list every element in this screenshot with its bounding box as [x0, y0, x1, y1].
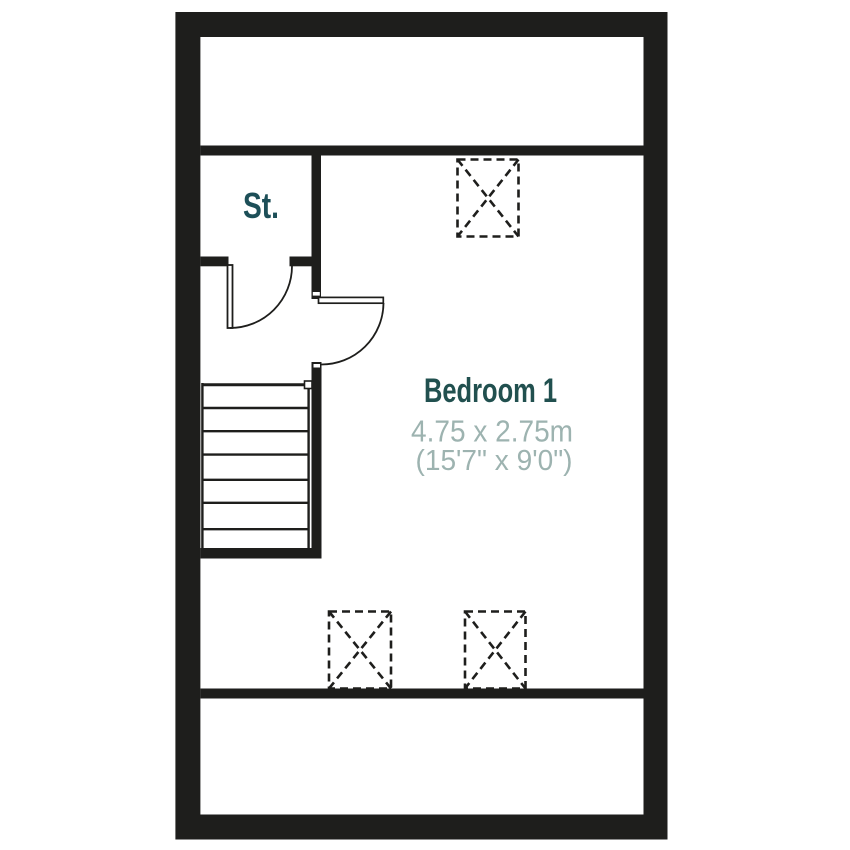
- svg-text:4.75 x 2.75m: 4.75 x 2.75m: [411, 414, 573, 449]
- svg-text:(15'7" x 9'0"): (15'7" x 9'0"): [416, 445, 573, 477]
- svg-text:Bedroom 1: Bedroom 1: [424, 372, 557, 410]
- svg-text:St.: St.: [243, 185, 279, 226]
